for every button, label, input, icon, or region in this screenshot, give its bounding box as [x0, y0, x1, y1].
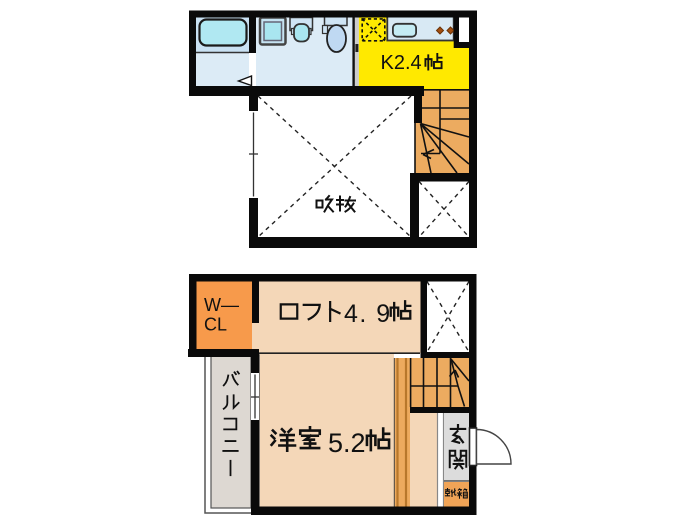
svg-text:4. 9: 4. 9	[344, 300, 392, 328]
svg-text:K2.4: K2.4	[381, 52, 422, 74]
svg-text:5.2: 5.2	[328, 428, 366, 458]
svg-text:W—: W—	[204, 295, 239, 315]
svg-text:CL: CL	[204, 315, 227, 335]
